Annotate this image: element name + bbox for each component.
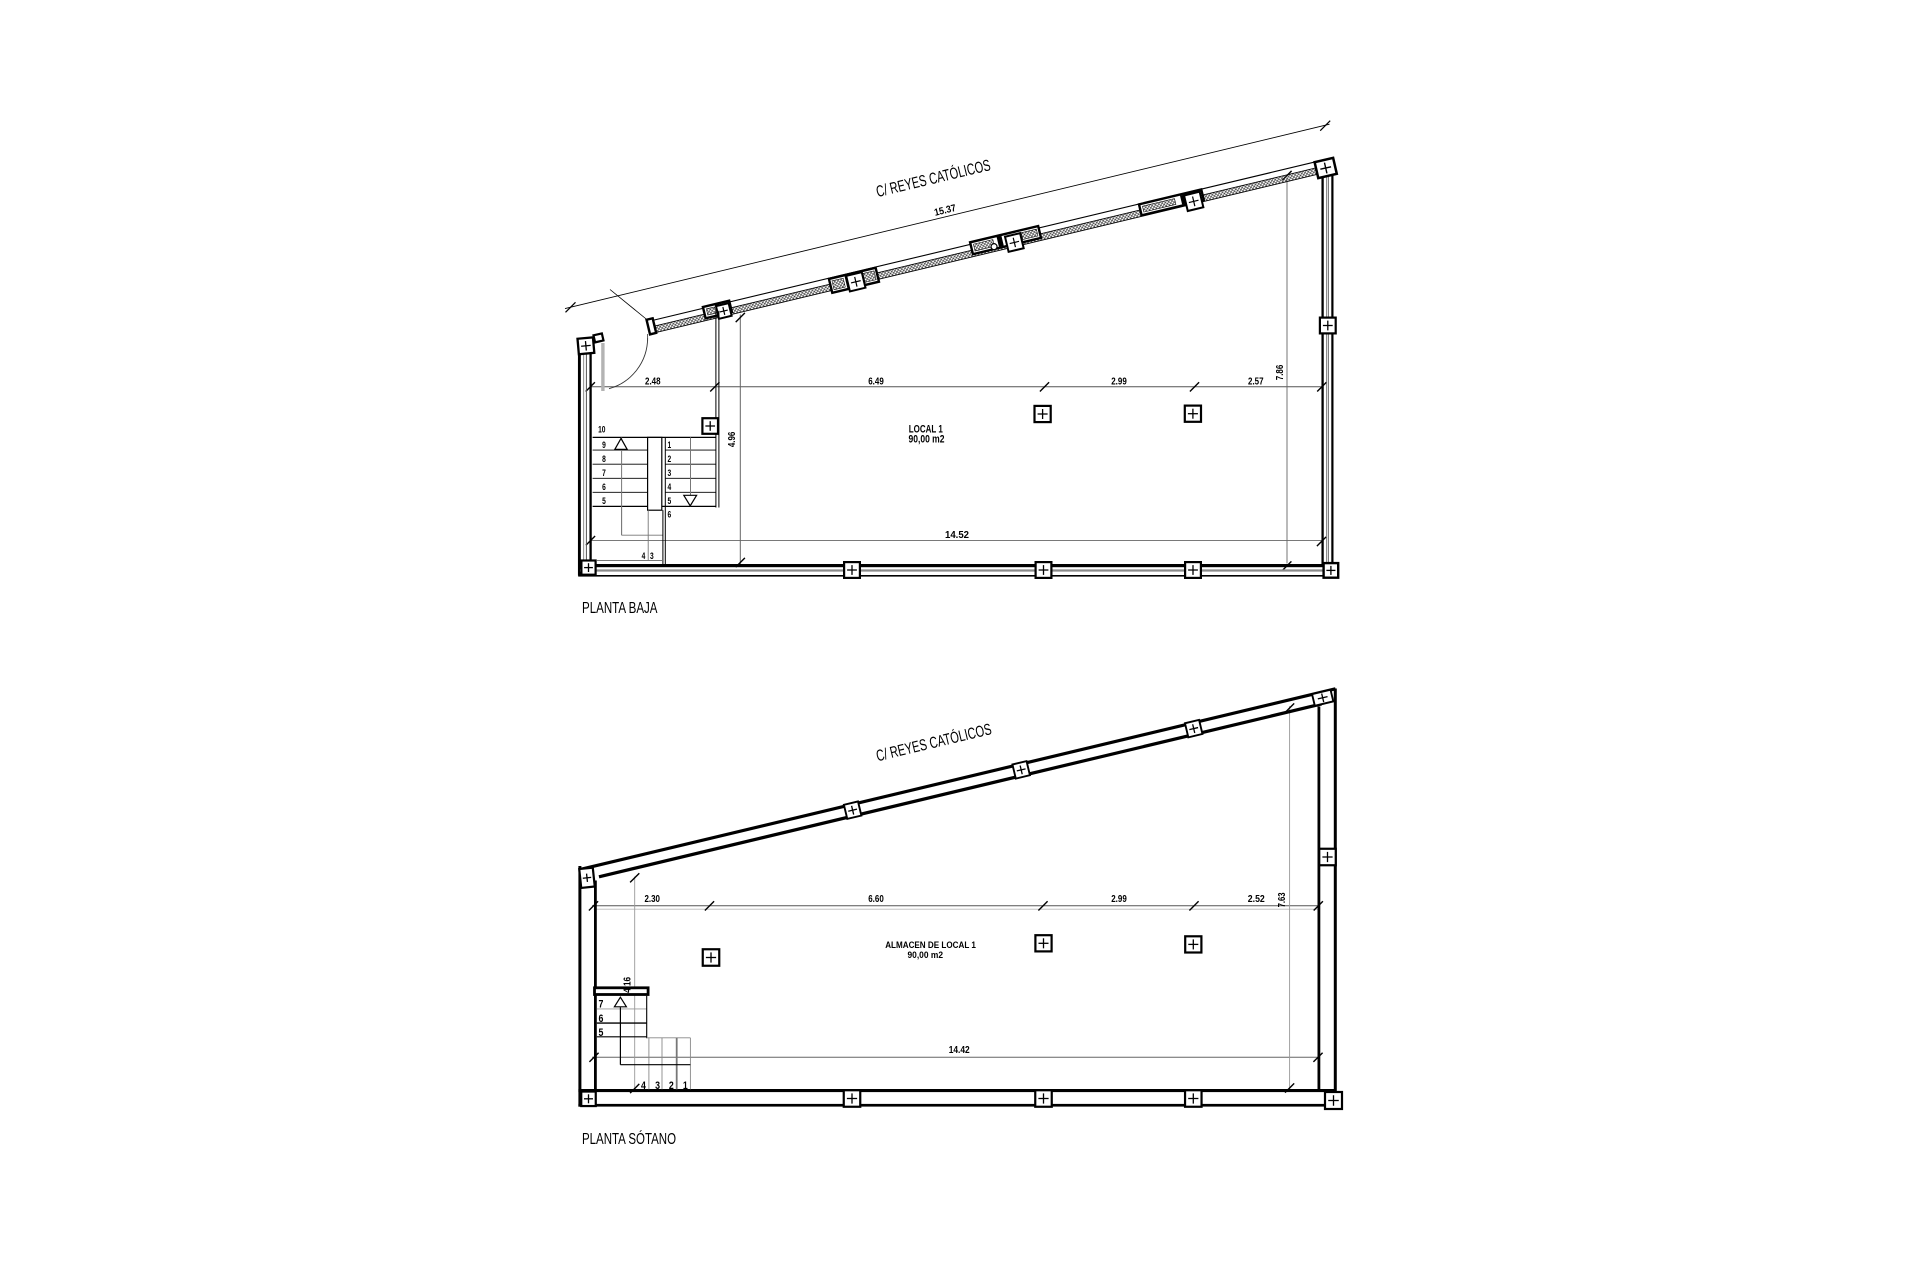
svg-text:6: 6 <box>599 1013 604 1025</box>
svg-text:PLANTA BAJA: PLANTA BAJA <box>582 600 658 617</box>
svg-text:5: 5 <box>599 1027 604 1039</box>
svg-text:10: 10 <box>598 424 605 434</box>
svg-text:2.30: 2.30 <box>644 894 660 905</box>
svg-text:2.99: 2.99 <box>1111 894 1127 905</box>
svg-text:6: 6 <box>667 509 671 519</box>
svg-text:4: 4 <box>641 1080 647 1092</box>
svg-text:5: 5 <box>667 496 671 506</box>
svg-text:3: 3 <box>655 1080 660 1092</box>
svg-text:2.99: 2.99 <box>1111 377 1127 388</box>
svg-text:2.57: 2.57 <box>1248 377 1264 388</box>
svg-text:4: 4 <box>667 482 671 492</box>
svg-text:8: 8 <box>602 454 606 464</box>
svg-text:7: 7 <box>599 999 604 1011</box>
svg-text:2: 2 <box>667 454 671 464</box>
svg-text:7.86: 7.86 <box>1275 364 1286 380</box>
svg-text:6: 6 <box>602 482 606 492</box>
svg-text:2: 2 <box>669 1080 674 1092</box>
svg-text:4.16: 4.16 <box>622 977 633 993</box>
svg-text:7.63: 7.63 <box>1277 892 1288 907</box>
svg-text:14.42: 14.42 <box>949 1045 970 1056</box>
svg-text:9: 9 <box>602 440 606 450</box>
svg-text:90,00 m2: 90,00 m2 <box>909 433 945 445</box>
svg-text:14.52: 14.52 <box>945 530 969 541</box>
svg-text:7: 7 <box>602 468 606 478</box>
svg-text:1: 1 <box>683 1080 688 1092</box>
svg-text:3: 3 <box>667 468 671 478</box>
svg-text:2.52: 2.52 <box>1248 894 1265 905</box>
svg-text:6.60: 6.60 <box>868 894 884 905</box>
svg-text:2.48: 2.48 <box>645 377 661 388</box>
svg-text:5: 5 <box>602 496 606 506</box>
svg-text:1: 1 <box>667 440 671 450</box>
svg-text:90,00 m2: 90,00 m2 <box>908 950 944 961</box>
svg-text:4.96: 4.96 <box>727 431 738 447</box>
svg-text:PLANTA SÓTANO: PLANTA SÓTANO <box>582 1129 676 1148</box>
svg-text:6.49: 6.49 <box>868 377 884 388</box>
svg-text:3: 3 <box>650 551 654 561</box>
svg-text:4: 4 <box>642 551 646 561</box>
